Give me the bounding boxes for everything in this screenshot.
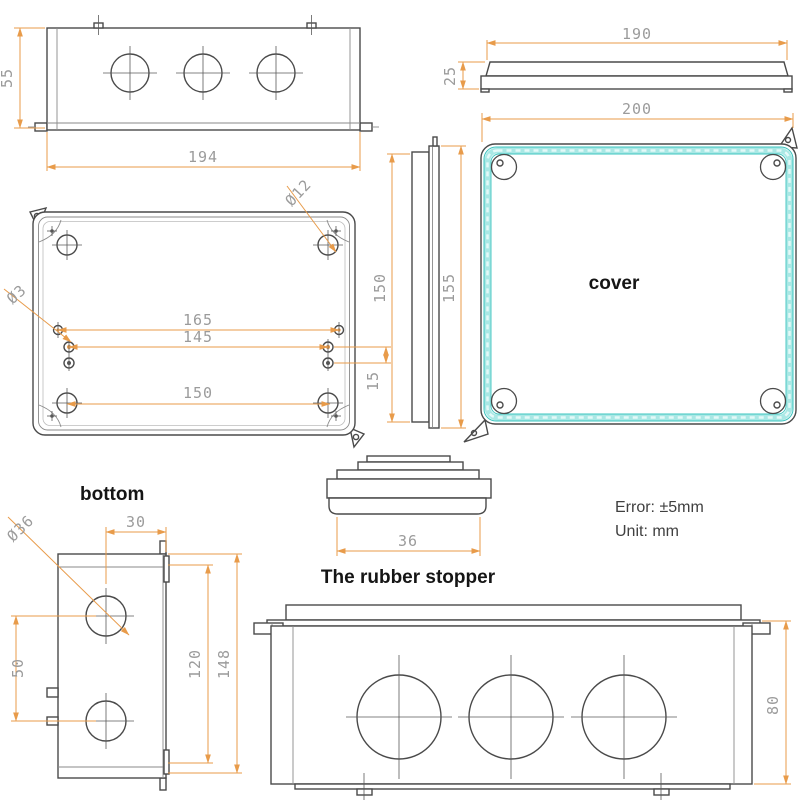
front-knockout-holes <box>103 46 303 100</box>
front-left-foot <box>35 123 47 131</box>
cover-side-rim <box>429 146 439 428</box>
dim-label-hole-pitch: 50 <box>9 658 27 678</box>
error-note: Error: ±5mm <box>615 499 704 516</box>
rubber-stopper-label: The rubber stopper <box>321 567 496 588</box>
cover-side-view: 150 155 <box>371 137 466 428</box>
dim-front-height: 55 <box>0 28 45 128</box>
front-body <box>47 28 360 130</box>
rubber-stopper-view: 36 The rubber stopper <box>321 456 496 588</box>
assembled-lid <box>286 605 741 620</box>
cover-top-view: cover 200 <box>464 100 797 442</box>
dim-label-front-width: 194 <box>188 148 218 166</box>
dim-label-span-top: 165 <box>183 311 213 329</box>
dim-label-hole-offset: 15 <box>364 371 382 391</box>
front-view: 55 194 <box>0 15 379 171</box>
end-left-tab <box>47 688 58 697</box>
stopper-lip <box>329 498 486 514</box>
dim-stopper-width: 36 <box>337 517 480 556</box>
dim-end-inner-height: 120 <box>168 565 213 763</box>
assembled-bottom-tab <box>357 789 372 795</box>
base-bottom-view: 165 145 150 15 Ø12 Ø3 <box>3 175 391 447</box>
dim-label-stopper-width: 36 <box>398 532 418 550</box>
front-right-foot <box>360 123 372 131</box>
dim-label-small-hole: Ø3 <box>3 281 30 308</box>
end-clip <box>164 750 169 774</box>
dim-cover-top-width: 200 <box>482 100 793 142</box>
drawing-canvas: 55 194 190 25 <box>0 0 800 800</box>
dim-label-cover-side-inner: 150 <box>371 273 389 303</box>
cover-side-pin <box>433 137 437 146</box>
dim-cover-profile-height: 25 <box>441 62 485 89</box>
cover-profile-view: 190 25 <box>441 25 792 92</box>
assembled-view: 80 <box>254 605 791 800</box>
dim-label-front-height: 55 <box>0 68 16 88</box>
dim-label-edge-offset: 30 <box>126 513 146 531</box>
dim-label-assembled-height: 80 <box>764 695 782 715</box>
end-bottom-pin <box>160 778 166 790</box>
cover-profile-top <box>486 62 788 76</box>
unit-note: Unit: mm <box>615 523 679 540</box>
dim-label-cover-profile-width: 190 <box>622 25 652 43</box>
end-body <box>58 554 166 778</box>
dim-label-cover-side-outer: 155 <box>440 273 458 303</box>
dim-label-cover-top-width: 200 <box>622 100 652 118</box>
assembled-lid-flange <box>267 620 760 626</box>
assembled-bottom-lip <box>295 784 730 789</box>
end-view: bottom 30 50 120 <box>3 484 242 790</box>
cover-label: cover <box>589 273 640 294</box>
cover-profile-base <box>481 76 792 89</box>
assembled-body <box>271 626 752 784</box>
bottom-label: bottom <box>80 484 144 505</box>
technical-drawing: 55 194 190 25 <box>0 0 800 800</box>
end-clip <box>164 556 169 582</box>
dim-label-end-inner-height: 120 <box>186 649 204 679</box>
dim-label-span-mid: 145 <box>183 328 213 346</box>
dim-label-end-outer-height: 148 <box>215 649 233 679</box>
dim-cover-profile-width: 190 <box>487 25 787 60</box>
dim-assembled-height: 80 <box>754 621 791 784</box>
dim-cover-side-outer: 155 <box>440 146 466 428</box>
dim-label-span-bottom: 150 <box>183 384 213 402</box>
dim-label-cover-profile-height: 25 <box>441 66 459 86</box>
end-top-pin <box>160 541 166 554</box>
dim-label-corner-hole: Ø12 <box>281 175 315 209</box>
assembled-bottom-tab <box>654 789 669 795</box>
cover-side-plate <box>412 152 429 422</box>
dim-front-width: 194 <box>47 132 360 171</box>
dim-end-outer-height: 148 <box>168 554 242 773</box>
tolerance-notes: Error: ±5mm Unit: mm <box>615 499 704 540</box>
